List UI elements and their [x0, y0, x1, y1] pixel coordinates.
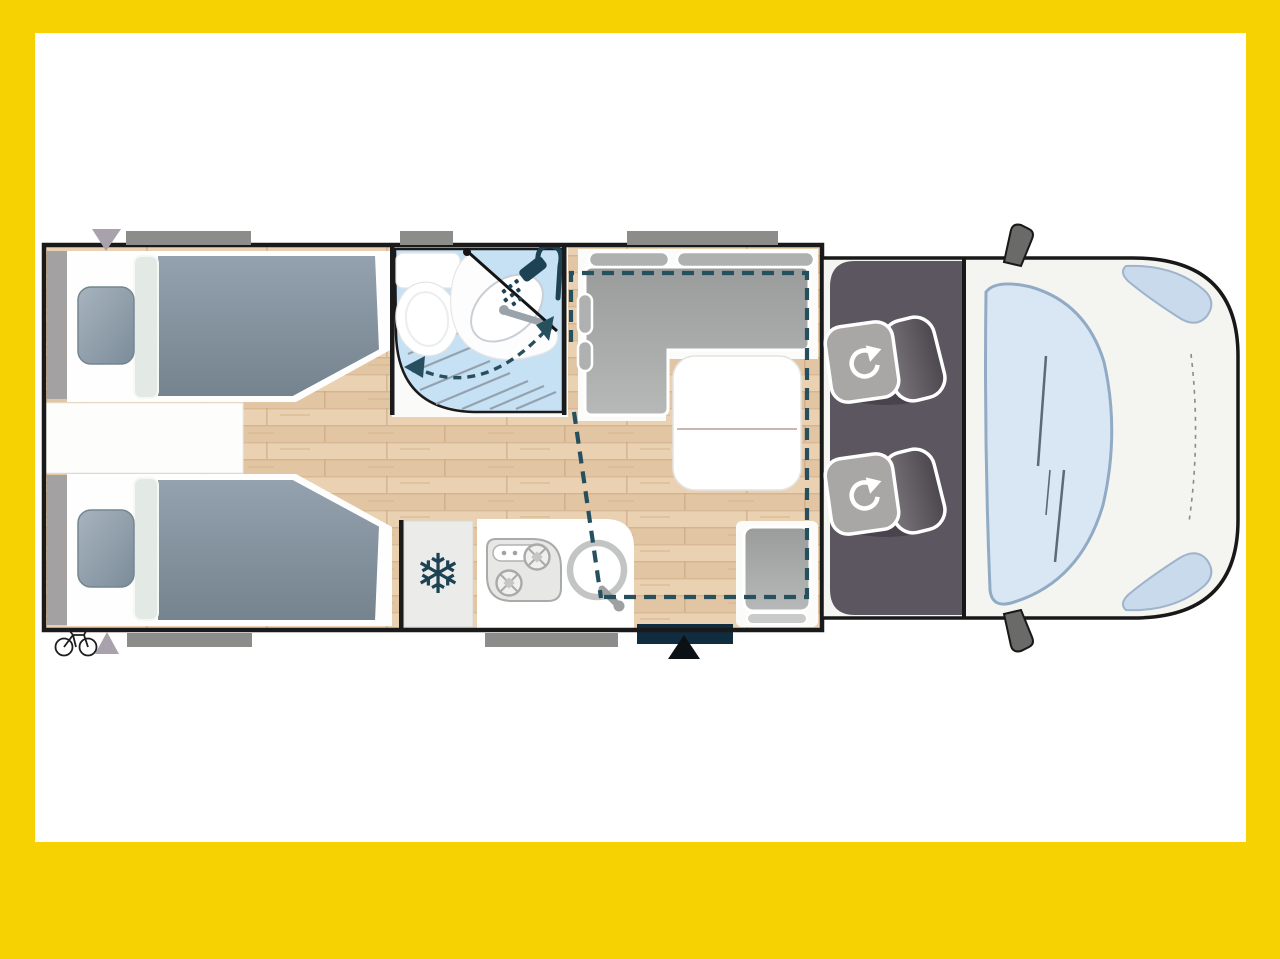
stove-knob: [502, 551, 507, 556]
fridge-snowflake-icon: ❄: [415, 542, 461, 606]
side-bench-pill: [747, 613, 807, 624]
brand-footer: GmbH REISEMOBILE Mobile Freizeit genieße…: [0, 842, 1280, 959]
wardrobe-strip-top: [47, 251, 67, 399]
cab-bulkhead-line: [962, 259, 966, 617]
wardrobe-strip-bottom: [47, 475, 67, 625]
burner: [497, 571, 522, 596]
marker-triangle-up-icon: [95, 632, 119, 654]
headrest-pill: [578, 294, 592, 334]
bed-bottom-headboard: [134, 478, 158, 620]
window-bar: [400, 231, 453, 245]
window-bar: [485, 633, 618, 647]
swivel-seat-passenger: [823, 445, 949, 537]
window-bar: [126, 231, 251, 245]
pillow-bottom: [78, 510, 134, 587]
nightstand: [46, 403, 243, 473]
kitchen-wall: [399, 520, 404, 628]
burner: [525, 545, 550, 570]
swivel-seat-driver: [823, 313, 949, 405]
headrest-pill: [578, 341, 592, 371]
kitchen-sink: [570, 543, 624, 597]
dealer-advert-canvas: ❄: [0, 0, 1280, 959]
window-bar: [127, 633, 252, 647]
stove-knob: [513, 551, 518, 556]
bathroom-wall-left: [390, 247, 395, 415]
window-bar: [627, 231, 778, 245]
pillow-top: [78, 287, 134, 364]
bathroom: [390, 246, 568, 417]
floorplan-illustration: ❄: [0, 0, 1280, 959]
bed-top-headboard: [134, 256, 158, 398]
bike-rack-icon: [56, 629, 97, 656]
dinette-table: [673, 356, 801, 490]
driver-cab: [822, 225, 1238, 652]
headrest-pill: [677, 252, 814, 267]
sink-tap-base: [614, 601, 625, 612]
cab-floor: [830, 261, 963, 615]
headrest-pill: [589, 252, 669, 267]
pivot-hinge: [463, 248, 471, 256]
bathroom-wall-right: [562, 247, 567, 415]
